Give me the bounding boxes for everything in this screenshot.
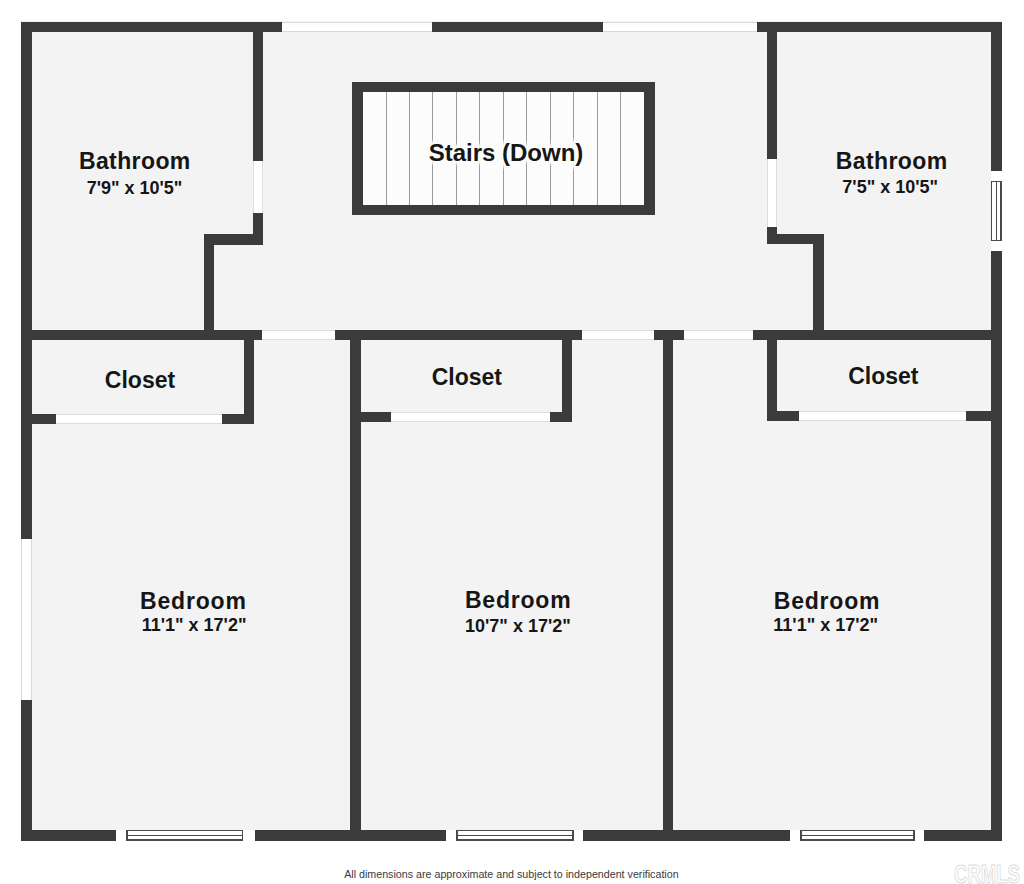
svg-text:Bathroom: Bathroom <box>836 148 948 174</box>
svg-text:7'9" x 10'5": 7'9" x 10'5" <box>87 178 183 198</box>
svg-text:Stairs (Down): Stairs (Down) <box>429 139 584 166</box>
svg-text:All dimensions are approximate: All dimensions are approximate and subje… <box>344 868 679 880</box>
svg-text:Bedroom: Bedroom <box>465 587 572 613</box>
svg-text:11'1" x 17'2": 11'1" x 17'2" <box>142 615 247 635</box>
svg-text:10'7" x 17'2": 10'7" x 17'2" <box>465 616 571 636</box>
svg-text:CRMLS: CRMLS <box>954 859 1020 884</box>
svg-text:Bedroom: Bedroom <box>774 588 881 614</box>
svg-text:7'5" x 10'5": 7'5" x 10'5" <box>842 177 938 197</box>
svg-text:11'1" x 17'2": 11'1" x 17'2" <box>773 615 878 635</box>
svg-text:Bedroom: Bedroom <box>140 588 247 614</box>
svg-text:Closet: Closet <box>848 363 919 389</box>
svg-text:Closet: Closet <box>432 364 503 390</box>
svg-text:Bathroom: Bathroom <box>79 148 191 174</box>
svg-text:Closet: Closet <box>105 367 176 393</box>
